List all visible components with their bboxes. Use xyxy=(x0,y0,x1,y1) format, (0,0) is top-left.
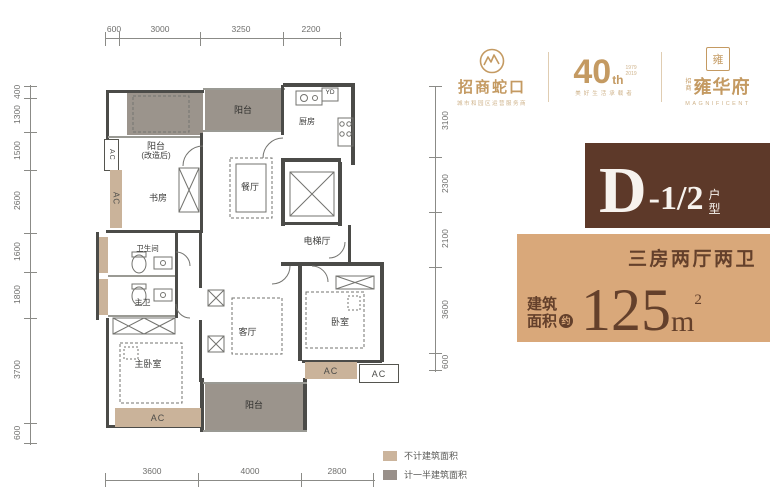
dim-right-3600: 3600 xyxy=(440,295,450,325)
dim-left-1300: 1300 xyxy=(12,100,22,130)
approx-badge: 约 xyxy=(559,314,573,328)
brand-shekou-name: 招商蛇口 xyxy=(458,76,526,97)
area-exponent: 2 xyxy=(694,294,702,306)
sink-icon xyxy=(154,257,172,269)
legend-swatch-half xyxy=(383,470,397,480)
dim-bottom-3600: 3600 xyxy=(130,466,174,476)
dim-left-3700: 3700 xyxy=(12,355,22,385)
dim-bottom-4000: 4000 xyxy=(228,466,272,476)
brand-yonghuafu: 雍 招 商 雍华府 MAGNIFICENT xyxy=(666,40,770,114)
legend-item-half: 计一半建筑面积 xyxy=(383,468,467,481)
area-value: 125 xyxy=(581,286,671,334)
dim-top-3250: 3250 xyxy=(219,24,263,34)
anniversary-number: 40 xyxy=(573,57,611,88)
door-arc xyxy=(312,266,328,282)
dim-right-600: 600 xyxy=(440,347,450,377)
mountain-logo-icon xyxy=(479,48,505,74)
room-label-balcony-renovated: 阳台 (改造后) xyxy=(112,141,200,161)
dim-left-1500: 1500 xyxy=(12,136,22,166)
floorplan-page: 600 3000 3250 2200 3600 4000 2800 400 13… xyxy=(0,0,770,500)
brand-strip: 招商蛇口 城市和园区运营服务商 40 th 1979 2019 美好生活承载者 … xyxy=(440,40,770,114)
room-label-master-bathroom: 主卫 xyxy=(125,298,160,307)
anniversary-tagline: 美好生活承载者 xyxy=(575,89,635,97)
unit-letter: D xyxy=(599,164,647,218)
room-label-dining: 餐厅 xyxy=(233,182,267,192)
dim-left-1600: 1600 xyxy=(12,237,22,267)
layout-description: 三房两厅两卫 xyxy=(628,244,757,271)
brand-divider xyxy=(548,52,549,102)
brand-shekou: 招商蛇口 城市和园区运营服务商 xyxy=(440,40,544,114)
bed-icon xyxy=(120,343,182,403)
door-arc xyxy=(176,304,190,318)
unit-title-box: D -1/2 户 型 xyxy=(585,143,770,228)
room-label-balcony-top: 阳台 xyxy=(205,105,281,115)
room-label-living: 客厅 xyxy=(225,327,270,337)
door-arc xyxy=(272,266,290,284)
brand-divider xyxy=(661,52,662,102)
dim-line-left xyxy=(30,85,31,445)
room-label-master-bedroom: 主卧室 xyxy=(118,359,178,369)
room-label-kitchen: 厨房 xyxy=(287,117,327,126)
brand-prefix: 招 商 xyxy=(685,79,691,92)
anniversary-suffix: th xyxy=(612,73,623,87)
brand-yonghuafu-tagline: MAGNIFICENT xyxy=(685,101,750,107)
area-label: 建筑 面积 约 xyxy=(527,296,573,331)
dim-top-600: 600 xyxy=(92,24,136,34)
dim-line-bottom xyxy=(105,480,375,481)
dim-right-2100: 2100 xyxy=(440,224,450,254)
room-label-bathroom: 卫生间 xyxy=(125,245,170,254)
kitchen-sink-icon xyxy=(296,91,322,105)
dim-left-2600: 2600 xyxy=(12,186,22,216)
door-arc xyxy=(176,252,190,266)
unit-type-chars: 户 型 xyxy=(708,189,720,217)
ac-platform: AC xyxy=(110,170,122,228)
dim-right-2300: 2300 xyxy=(440,169,450,199)
toilet-icon xyxy=(132,255,146,273)
dim-bottom-2800: 2800 xyxy=(315,466,359,476)
dim-left-600: 600 xyxy=(12,418,22,448)
sofa-icon xyxy=(232,298,282,354)
unit-variant: -1/2 xyxy=(649,180,704,218)
anniversary-years: 1979 2019 xyxy=(626,65,637,77)
wardrobe-icon xyxy=(113,318,175,334)
room-label-bedroom: 卧室 xyxy=(320,317,360,327)
legend-swatch-excluded xyxy=(383,451,397,461)
floor-plan-furniture xyxy=(90,80,410,450)
dim-line-top xyxy=(105,38,342,39)
door-arc xyxy=(263,138,283,158)
brand-shekou-tagline: 城市和园区运营服务商 xyxy=(457,99,527,107)
dim-top-3000: 3000 xyxy=(138,24,182,34)
bed-icon xyxy=(133,96,189,132)
area-info-box: 三房两厅两卫 建筑 面积 约 125 m 2 xyxy=(517,234,770,342)
room-label-balcony-bottom: 阳台 xyxy=(205,400,303,410)
room-label-elevator-hall: 电梯厅 xyxy=(283,236,351,246)
room-label-laundry-duct: YD xyxy=(322,89,338,96)
legend: 不计建筑面积 计一半建筑面积 xyxy=(383,449,467,487)
brand-yonghuafu-name: 雍华府 xyxy=(694,73,751,99)
ac-platform: AC xyxy=(115,408,201,427)
area-unit: m xyxy=(671,310,694,334)
room-label-study: 书房 xyxy=(130,193,186,203)
brand-40th: 40 th 1979 2019 美好生活承载者 xyxy=(553,40,657,114)
dim-line-right xyxy=(435,86,436,372)
dim-left-1800: 1800 xyxy=(12,280,22,310)
legend-item-excluded: 不计建筑面积 xyxy=(383,449,467,462)
dim-top-2200: 2200 xyxy=(289,24,333,34)
seal-icon: 雍 xyxy=(706,47,730,71)
ac-platform: AC xyxy=(305,362,357,379)
ac-platform: AC xyxy=(359,364,399,383)
